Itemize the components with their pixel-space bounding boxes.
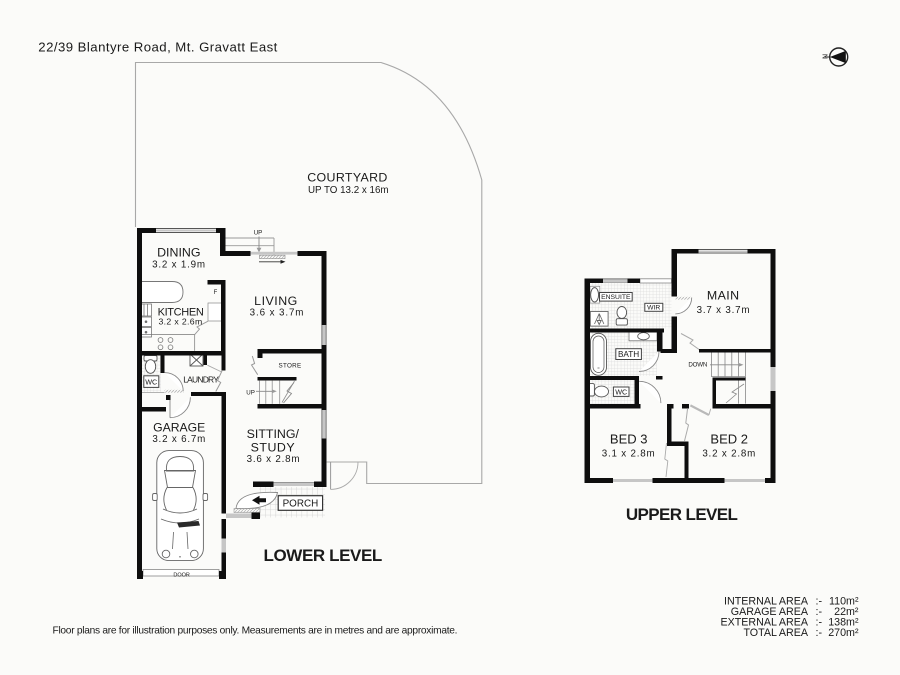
svg-text:ENSUITE: ENSUITE bbox=[601, 294, 631, 301]
svg-text:LAUNDRY: LAUNDRY bbox=[183, 375, 219, 385]
svg-text:LOWER LEVEL: LOWER LEVEL bbox=[264, 546, 382, 565]
svg-text:270m²: 270m² bbox=[828, 627, 859, 639]
svg-text:3.2 x 2.8m: 3.2 x 2.8m bbox=[702, 448, 756, 459]
svg-text:UPPER LEVEL: UPPER LEVEL bbox=[626, 505, 738, 524]
svg-text:22/39 Blantyre Road, Mt. Grava: 22/39 Blantyre Road, Mt. Gravatt East bbox=[38, 39, 277, 54]
svg-text:UP TO 13.2 x 16m: UP TO 13.2 x 16m bbox=[308, 185, 389, 196]
svg-text:GARAGE: GARAGE bbox=[153, 421, 205, 435]
svg-text:DINING: DINING bbox=[157, 245, 200, 259]
svg-text:3.6 x 3.7m: 3.6 x 3.7m bbox=[250, 307, 305, 318]
svg-text:F: F bbox=[214, 290, 218, 296]
svg-text:3.2 x 1.9m: 3.2 x 1.9m bbox=[152, 259, 206, 270]
svg-text:MAIN: MAIN bbox=[707, 289, 740, 303]
svg-text:COURTYARD: COURTYARD bbox=[307, 171, 387, 185]
svg-text:3.1 x 2.8m: 3.1 x 2.8m bbox=[602, 448, 656, 459]
svg-text:Floor plans are for illustrati: Floor plans are for illustration purpose… bbox=[53, 626, 458, 637]
svg-text:WC: WC bbox=[615, 387, 627, 396]
svg-text:UP: UP bbox=[254, 229, 263, 236]
svg-text:SITTING/: SITTING/ bbox=[247, 427, 300, 441]
svg-text:LIVING: LIVING bbox=[254, 294, 298, 308]
svg-text:3.6 x 2.8m: 3.6 x 2.8m bbox=[247, 454, 301, 465]
svg-text:STORE: STORE bbox=[278, 362, 301, 369]
svg-text:3.2 x 2.6m: 3.2 x 2.6m bbox=[158, 316, 202, 326]
svg-text:BATH: BATH bbox=[618, 350, 639, 359]
svg-text:3.7 x 3.7m: 3.7 x 3.7m bbox=[697, 305, 751, 316]
svg-text:BED 3: BED 3 bbox=[610, 431, 648, 446]
svg-text:BED 2: BED 2 bbox=[710, 431, 748, 446]
svg-text:PORCH: PORCH bbox=[283, 499, 319, 510]
svg-text:3.2 x 6.7m: 3.2 x 6.7m bbox=[152, 434, 206, 445]
svg-text:WIR: WIR bbox=[647, 305, 660, 312]
svg-text::-: :- bbox=[815, 627, 822, 639]
svg-text:DOWN: DOWN bbox=[688, 361, 707, 368]
svg-text:UP: UP bbox=[246, 390, 255, 397]
svg-text:N: N bbox=[823, 54, 830, 59]
svg-text:DOOR: DOOR bbox=[173, 572, 190, 578]
svg-text:TOTAL AREA: TOTAL AREA bbox=[743, 627, 808, 639]
svg-text:STUDY: STUDY bbox=[251, 441, 296, 455]
svg-text:WC: WC bbox=[145, 378, 157, 387]
